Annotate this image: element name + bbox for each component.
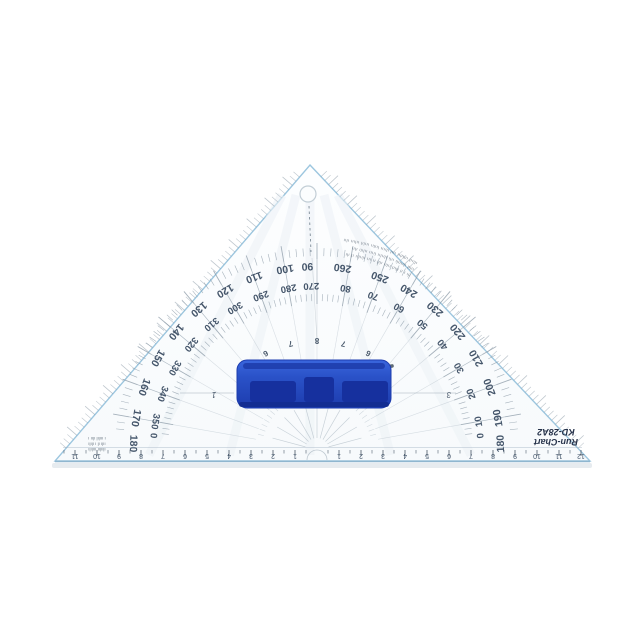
- leg-tick: [225, 251, 231, 256]
- ruler-number: 6: [447, 452, 451, 459]
- leg-tick: [118, 376, 124, 381]
- leg-tick: [332, 183, 338, 188]
- handle-slot-right: [342, 381, 388, 402]
- leg-tick: [529, 391, 535, 396]
- tool-shadow: [52, 463, 592, 468]
- ruler-number: 4: [403, 452, 407, 459]
- leg-tick: [204, 276, 210, 281]
- inner-degree-label: 80: [339, 282, 351, 295]
- leg-tick: [211, 260, 221, 268]
- leg-tick: [78, 422, 84, 427]
- ruler-number: 2: [271, 452, 275, 459]
- leg-tick: [75, 426, 81, 431]
- leg-tick: [521, 383, 527, 388]
- outer-degree-tick: [184, 291, 194, 303]
- ruler-number: 6: [183, 452, 187, 459]
- leg-tick: [247, 226, 253, 231]
- ruler-number: 8: [139, 452, 143, 459]
- leg-tick: [85, 406, 95, 414]
- leg-tick: [293, 172, 299, 177]
- ruler-number: 1: [337, 452, 341, 459]
- leg-tick: [193, 289, 199, 294]
- leg-tick: [336, 187, 342, 192]
- leg-tick: [495, 355, 501, 360]
- leg-tick: [139, 351, 145, 356]
- leg-tick: [265, 205, 271, 210]
- leg-tick: [236, 239, 242, 244]
- ruler-number: 5: [425, 452, 429, 459]
- outer-degree-tick: [452, 305, 458, 311]
- leg-tick: [114, 380, 120, 385]
- leg-tick: [121, 364, 131, 372]
- leg-tick: [103, 385, 113, 393]
- ruler-number: 8: [491, 452, 495, 459]
- leg-tick: [103, 393, 109, 398]
- leg-tick: [247, 219, 257, 227]
- leg-tick: [258, 214, 264, 219]
- inner-degree-label: 270: [303, 280, 319, 292]
- leg-tick: [355, 207, 361, 212]
- footnote-line: ıılı ıl ı ılılı: [88, 442, 105, 447]
- leg-tick: [552, 415, 558, 420]
- ruler-number: 11: [71, 452, 78, 459]
- leg-tick: [100, 397, 106, 402]
- misc-label: 3: [446, 390, 451, 399]
- misc-label: 1: [212, 390, 216, 399]
- handle-slot-left: [250, 381, 296, 402]
- leg-tick: [423, 276, 432, 285]
- leg-tick: [555, 415, 564, 424]
- ruler-number: 1: [293, 452, 297, 459]
- leg-tick: [283, 177, 293, 185]
- outer-degree-tick: [182, 300, 187, 306]
- leg-tick: [389, 243, 395, 248]
- leg-tick: [110, 384, 116, 389]
- footnote-line: ı ııılıl ılıı ı: [88, 436, 106, 441]
- outer-degree-tick: [470, 326, 476, 331]
- leg-tick: [283, 184, 289, 189]
- ruler-number: 2: [359, 452, 363, 459]
- leg-tick: [374, 227, 380, 232]
- leg-tick: [506, 367, 512, 372]
- leg-tick: [347, 196, 356, 205]
- outer-degree-tick: [463, 317, 475, 327]
- leg-tick: [329, 176, 338, 185]
- leg-tick: [533, 395, 539, 400]
- brand-text: Run-Chart KD-28A2: [533, 427, 578, 447]
- leg-tick: [193, 281, 203, 289]
- ruler-number: 7: [161, 452, 165, 459]
- inner-degree-label: 10: [473, 415, 486, 427]
- leg-tick: [290, 176, 296, 181]
- hanging-hole: [300, 186, 316, 202]
- outer-degree-label: 260: [333, 261, 352, 275]
- leg-tick: [279, 189, 285, 194]
- grip-handle[interactable]: [237, 360, 392, 408]
- leg-tick: [67, 434, 73, 439]
- leg-tick: [157, 323, 167, 331]
- outer-degree-label: 180: [127, 435, 140, 453]
- leg-tick: [325, 175, 331, 180]
- leg-tick: [370, 223, 376, 228]
- ruler-number: 5: [205, 452, 209, 459]
- outer-degree-tick: [146, 343, 153, 347]
- leg-tick: [548, 411, 554, 416]
- leg-tick: [510, 371, 516, 376]
- leg-tick: [363, 215, 369, 220]
- leg-tick: [518, 375, 527, 384]
- leg-tick: [92, 405, 98, 410]
- leg-tick: [243, 230, 249, 235]
- leg-tick: [64, 439, 70, 444]
- leg-tick: [82, 418, 88, 423]
- leg-tick: [544, 407, 550, 412]
- inner-degree-label: 0: [475, 433, 486, 439]
- leg-tick: [351, 203, 357, 208]
- leg-tick: [265, 198, 275, 206]
- leg-tick: [96, 401, 102, 406]
- ruler-number: 7: [469, 452, 473, 459]
- outer-degree-tick: [431, 287, 436, 293]
- product-photo: ılıııl ıılıılıı ıııl ılıııı lıılıı ııılı…: [0, 0, 640, 640]
- ruler-number: 9: [513, 452, 517, 459]
- ruler-number: 11: [555, 452, 562, 459]
- leg-tick: [222, 255, 228, 260]
- leg-tick: [60, 443, 66, 448]
- leg-tick: [207, 272, 213, 277]
- leg-tick: [514, 375, 520, 380]
- ruler-number: 4: [227, 452, 231, 459]
- outer-degree-label: 90: [301, 260, 313, 273]
- inner-degree-label: 0: [147, 433, 158, 439]
- leg-tick: [502, 363, 508, 368]
- handle-top-stripe: [243, 363, 385, 369]
- leg-tick: [540, 403, 546, 408]
- leg-tick: [261, 209, 267, 214]
- ruler-number: 12: [577, 452, 585, 459]
- leg-tick: [229, 247, 235, 252]
- ruler-number: 9: [117, 452, 121, 459]
- leg-tick: [419, 275, 425, 280]
- leg-tick: [385, 236, 394, 245]
- ruler-number: 10: [533, 452, 541, 459]
- leg-tick: [381, 235, 387, 240]
- leg-tick: [378, 231, 384, 236]
- handle-bottom-lip: [239, 402, 389, 407]
- footnote-fine-print: ılıılıı ııılılııılı ıl ı ılılıı ııılıl ı…: [88, 436, 106, 452]
- brand-line2: KD-28A2: [537, 427, 575, 437]
- outer-degree-label: 180: [495, 434, 508, 452]
- leg-tick: [175, 302, 185, 310]
- handle-slot-center: [304, 377, 334, 402]
- ruler-number: 3: [381, 452, 385, 459]
- leg-tick: [344, 195, 350, 200]
- brand-line1: Run-Chart: [533, 437, 578, 447]
- leg-tick: [536, 395, 545, 404]
- leg-tick: [85, 414, 91, 419]
- leg-tick: [67, 427, 77, 435]
- leg-tick: [218, 259, 224, 264]
- leg-tick: [499, 355, 508, 364]
- leg-tick: [121, 372, 127, 377]
- leg-tick: [321, 171, 327, 176]
- leg-tick: [254, 218, 260, 223]
- ruler-number: 10: [93, 452, 101, 459]
- leg-tick: [366, 216, 375, 225]
- protractor-triangle: ılıııl ıılıılıı ıııl ılıııı lıılıı ııılı…: [0, 0, 640, 640]
- leg-tick: [359, 211, 365, 216]
- ruler-number: 3: [249, 452, 253, 459]
- leg-tick: [240, 234, 246, 239]
- leg-tick: [525, 387, 531, 392]
- leg-tick: [229, 239, 239, 247]
